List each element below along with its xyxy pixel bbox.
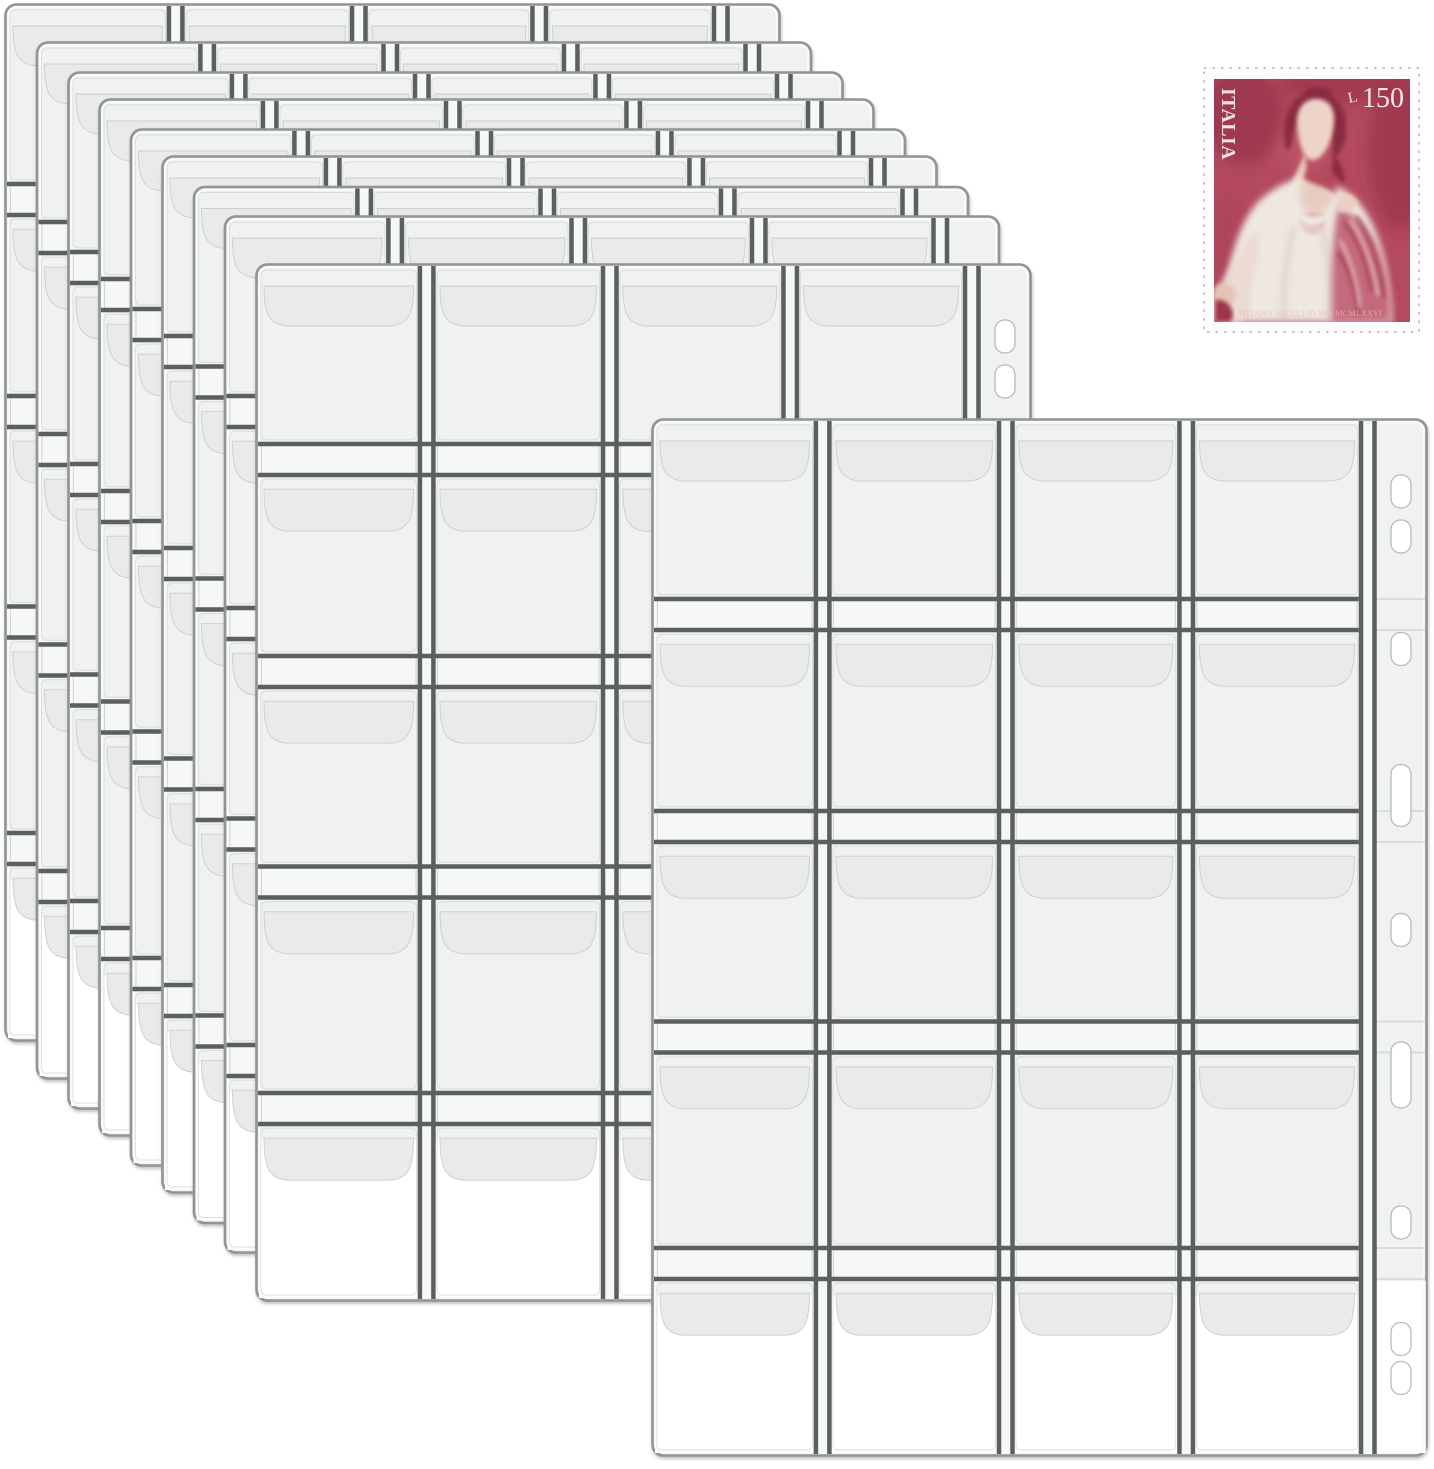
svg-text:150: 150	[1362, 83, 1404, 114]
svg-text:TIZIANO VECELLIO MM MCMLXXVI: TIZIANO VECELLIO MM MCMLXXVI	[1238, 309, 1382, 318]
svg-text:ITALIA: ITALIA	[1217, 88, 1239, 160]
